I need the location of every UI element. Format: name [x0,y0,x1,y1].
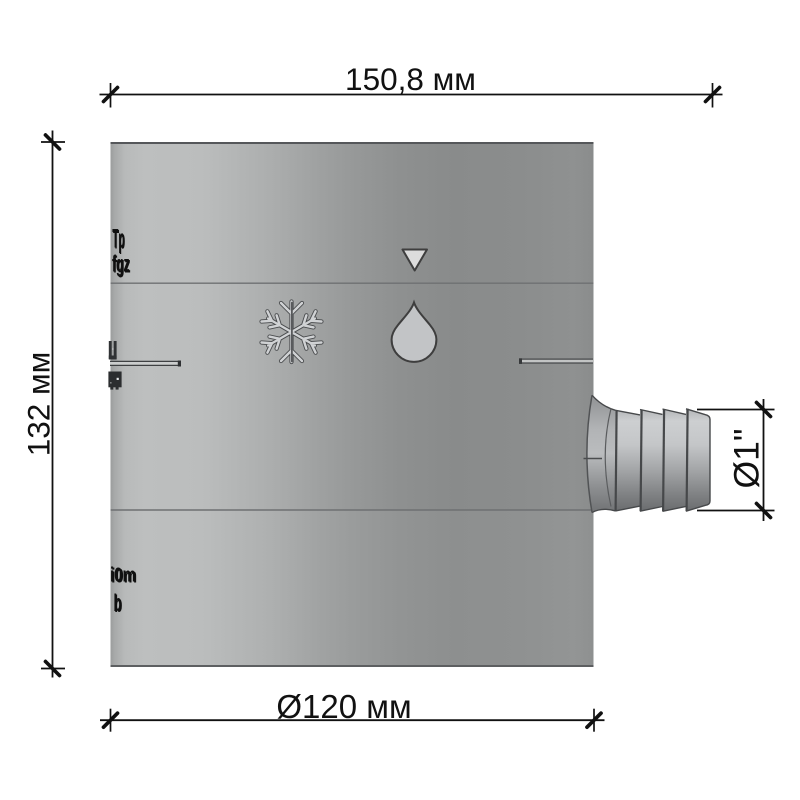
svg-text:Ø1": Ø1" [727,429,767,489]
svg-text:150,8 мм: 150,8 мм [345,61,476,97]
svg-text:i0m: i0m [110,563,136,586]
svg-text:b: b [114,590,122,617]
svg-text:132 мм: 132 мм [21,352,57,457]
svg-text:Ø120 мм: Ø120 мм [276,688,411,725]
svg-text:fgz: fgz [112,250,130,276]
